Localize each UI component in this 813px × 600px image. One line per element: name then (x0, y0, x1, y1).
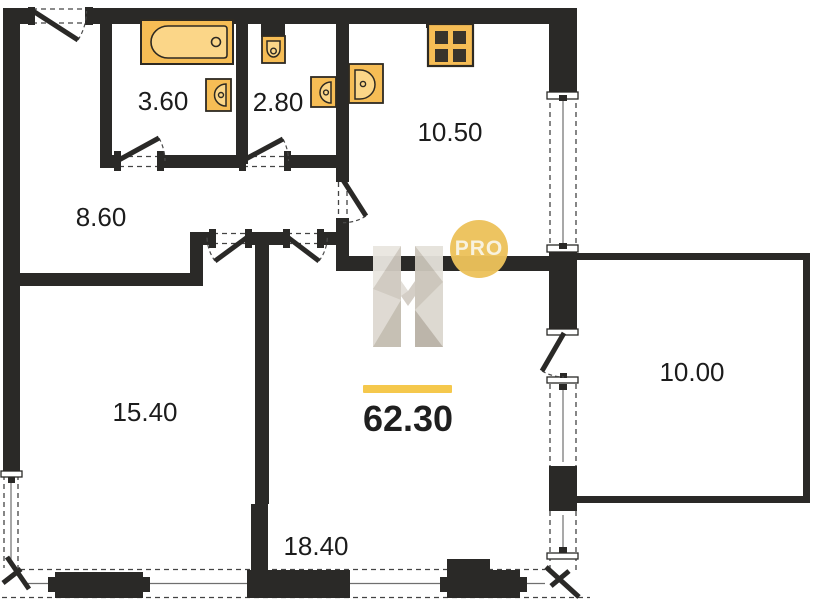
room-area-label-bathroom: 3.60 (103, 87, 223, 116)
bedroom-door-leaf (286, 236, 319, 261)
toilet-icon (262, 36, 285, 63)
bathroom-door-leaf (117, 138, 159, 161)
living-room-door-leaf (215, 236, 249, 261)
toilet-door-leaf (242, 139, 283, 161)
corner-window-mark-left (3, 557, 29, 589)
entrance-door-leaf (33, 11, 78, 40)
room-area-label-hallway: 8.60 (41, 203, 161, 232)
corner-window-mark-right (546, 567, 579, 597)
floor-plan-page: 3.60 2.80 10.50 8.60 15.40 18.40 10.00 6… (0, 0, 813, 600)
room-area-label-balcony: 10.00 (632, 358, 752, 387)
total-area-label: 62.30 (338, 398, 478, 440)
window-glass-lines (11, 99, 563, 584)
stove-icon (428, 24, 473, 66)
room-area-label-kitchen: 10.50 (390, 118, 510, 147)
total-area-underline (363, 385, 452, 393)
balcony-door-leaf (542, 333, 564, 371)
bathtub-icon (141, 20, 233, 64)
logo-pro-label: PRO (439, 237, 519, 261)
room-area-label-bedroom: 18.40 (256, 532, 376, 561)
room-area-label-toilet: 2.80 (218, 88, 338, 117)
kitchen-sink-icon (349, 64, 383, 103)
room-area-label-living-room: 15.40 (85, 398, 205, 427)
